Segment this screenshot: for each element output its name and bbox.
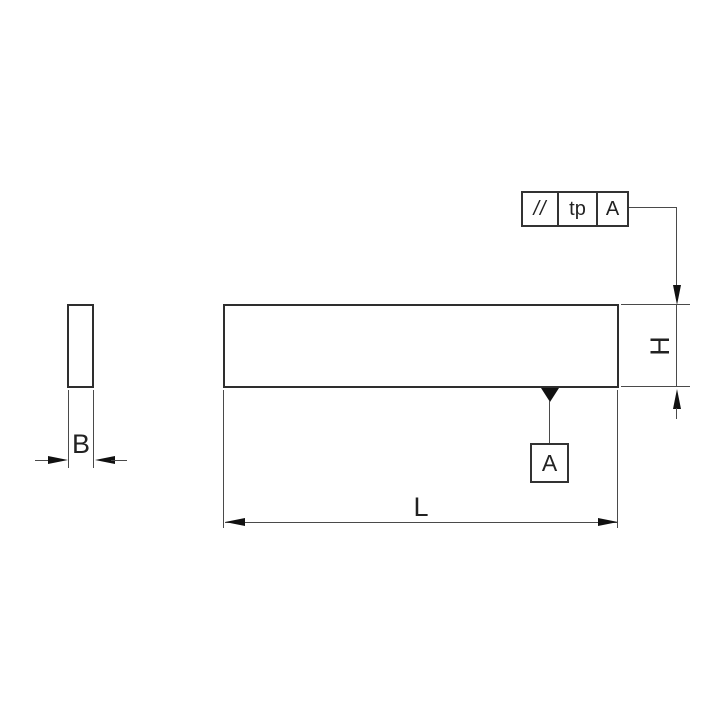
extension-line-h-top: [621, 304, 690, 305]
datum-label-box: A: [530, 443, 569, 483]
dimension-label-b: B: [66, 431, 96, 458]
extension-line-l-right: [617, 390, 618, 528]
fcf-leader-vertical: [676, 207, 677, 286]
fcf-leader-arrowhead-icon: [673, 285, 681, 305]
arrowhead-b-left-icon: [48, 456, 68, 464]
datum-leader-line: [549, 401, 550, 444]
datum-triangle-icon: [541, 388, 559, 402]
dimension-line-l: [225, 522, 618, 523]
dimension-line-b-right-tail: [111, 460, 127, 461]
side-view-rectangle: [67, 304, 94, 388]
fcf-leader-horizontal: [629, 207, 677, 208]
feature-control-frame: // tp A: [521, 191, 629, 227]
arrowhead-h-bottom-icon: [673, 389, 681, 409]
datum-reference-cell: A: [596, 193, 627, 225]
dimension-line-h: [676, 305, 677, 387]
dimension-label-h: H: [645, 331, 675, 361]
extension-line-l-left: [223, 390, 224, 528]
technical-drawing-canvas: B // tp A H A L: [0, 0, 720, 720]
tolerance-value-cell: tp: [557, 193, 596, 225]
arrowhead-l-right-icon: [598, 518, 618, 526]
dimension-label-l: L: [396, 494, 446, 521]
arrowhead-l-left-icon: [225, 518, 245, 526]
extension-line-h-bottom: [621, 386, 690, 387]
dimension-line-h-bottom-tail: [676, 408, 677, 419]
front-view-rectangle: [223, 304, 619, 388]
parallelism-symbol-icon: //: [523, 193, 557, 225]
